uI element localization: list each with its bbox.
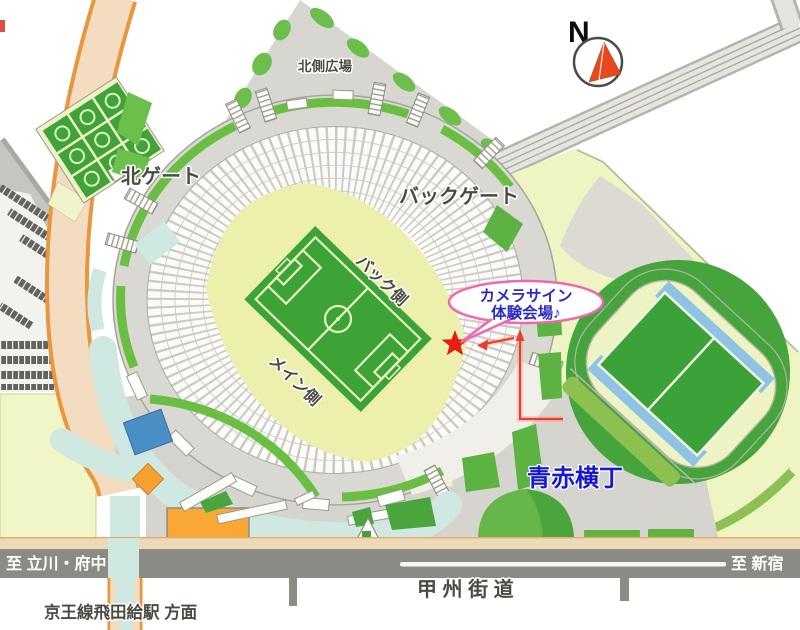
crosswalk [108, 538, 139, 578]
callout-line2: 体験会場♪ [491, 303, 561, 322]
stadium-access-map: バック側 メイン側 [0, 0, 800, 630]
back-gate-label: バックゲート [399, 185, 519, 208]
north-gate-label: 北ゲート [121, 165, 201, 188]
callout-line1: カメラサイン [479, 287, 572, 305]
to-shinjuku-label: 至 新宿 [731, 554, 783, 573]
keio-line-label: 京王線飛田給駅 方面 [44, 602, 197, 622]
aoaka-yokocho-label: 青赤横丁 [527, 464, 623, 492]
koshu-kaido-label: 甲 州 街 道 [417, 577, 514, 601]
north-plaza-label: 北側広場 [298, 58, 352, 74]
to-tachikawa-label: 至 立川・府中 [6, 554, 106, 573]
map-canvas: バック側 メイン側 [0, 0, 800, 630]
side-street [289, 578, 297, 606]
west-walkway [94, 270, 100, 330]
side-street [620, 578, 629, 601]
lane-line [400, 562, 726, 567]
